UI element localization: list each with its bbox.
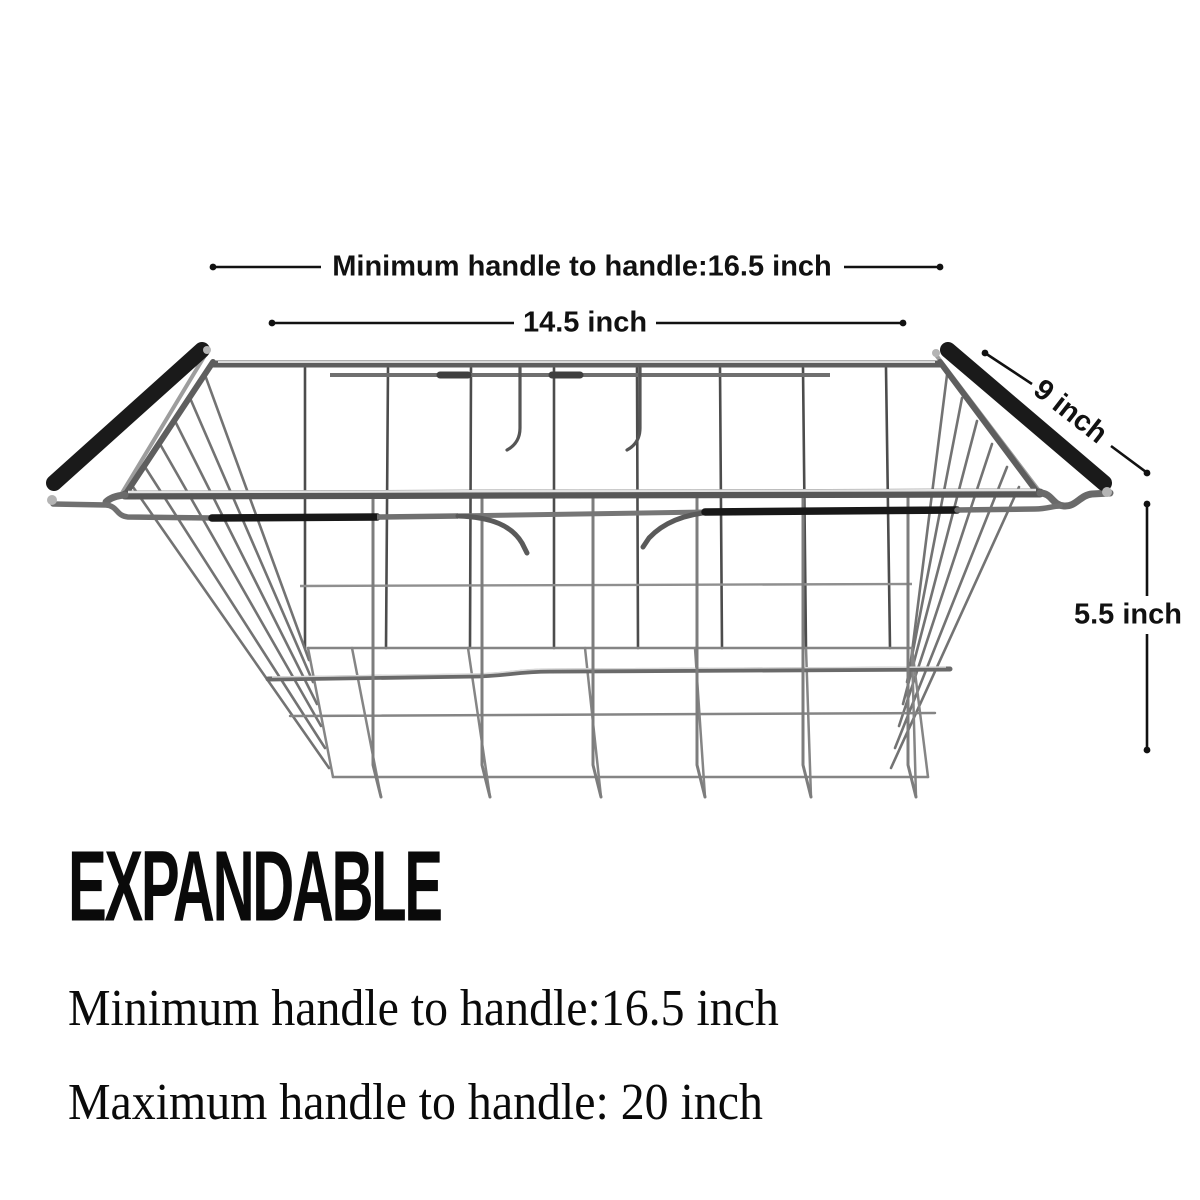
height-dimension-label: 5.5 inch — [1074, 599, 1182, 632]
expandable-heading: EXPANDABLE — [68, 836, 441, 936]
lower-slide-bar — [268, 667, 950, 679]
min-handle-dimension-label: Minimum handle to handle:16.5 inch — [332, 251, 832, 284]
basket-front-rim — [106, 490, 1110, 506]
basket-side-rims — [125, 362, 1037, 495]
basket-back-lower-wire — [300, 584, 912, 586]
caption-max-handle: Maximum handle to handle: 20 inch — [68, 1074, 763, 1131]
back-rim-hooks — [507, 368, 640, 450]
product-dimension-diagram: Minimum handle to handle:16.5 inch 14.5 … — [0, 0, 1200, 1200]
basket-back-rim — [213, 362, 940, 375]
width-dimension-label: 14.5 inch — [523, 307, 647, 340]
caption-min-handle: Minimum handle to handle:16.5 inch — [68, 980, 779, 1037]
basket-right-wall-wires — [891, 375, 1019, 768]
